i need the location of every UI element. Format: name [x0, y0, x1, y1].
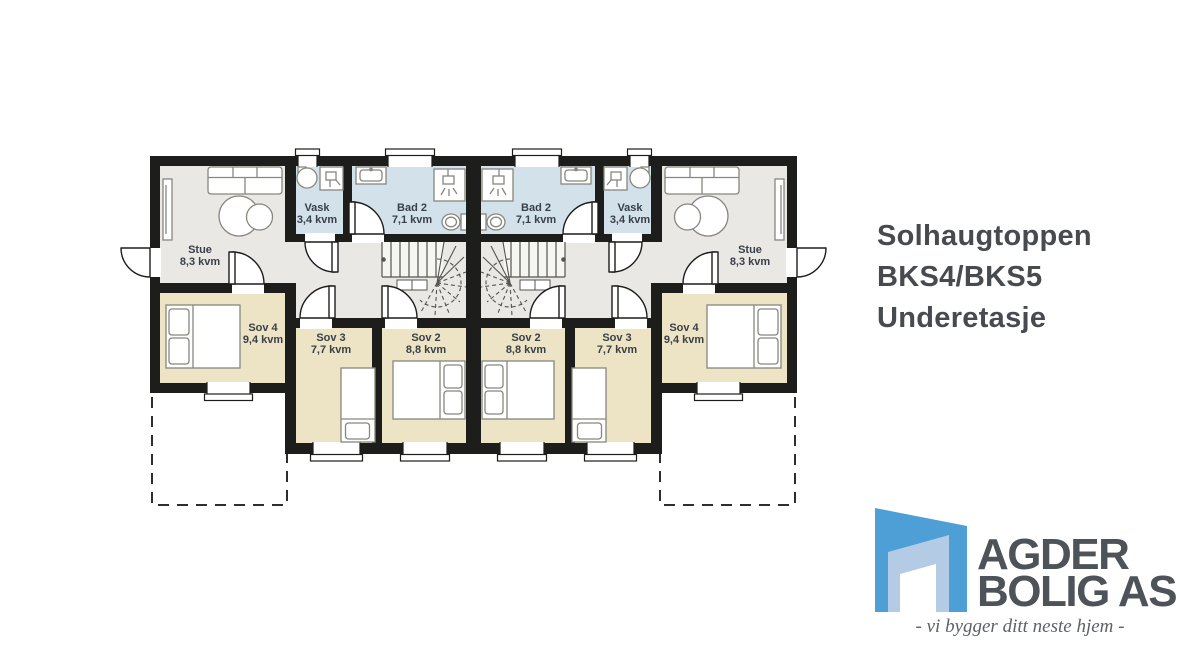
label-sov3-right-area: 7,7 kvm	[597, 344, 638, 356]
plan-title-floor: Underetasje	[877, 298, 1092, 339]
label-sov2-left-area: 8,8 kvm	[406, 344, 447, 356]
floorplan: Stue 8,3 kvm Vask 3,4 kvm Bad 2 7,1 kvm …	[110, 140, 830, 520]
company-logo: AGDER BOLIG AS - vi bygger ditt neste hj…	[875, 498, 1165, 643]
label-stue-right-name: Stue	[738, 244, 762, 256]
label-bad2-left-name: Bad 2	[397, 202, 427, 214]
label-bad2-left-area: 7,1 kvm	[392, 214, 433, 226]
label-sov2-left-name: Sov 2	[411, 332, 440, 344]
label-sov4-left-area: 9,4 kvm	[243, 334, 284, 346]
plan-title-units: BKS4/BKS5	[877, 257, 1092, 298]
label-stue-right-area: 8,3 kvm	[730, 256, 771, 268]
page: Stue 8,3 kvm Vask 3,4 kvm Bad 2 7,1 kvm …	[0, 0, 1180, 663]
house-logo-icon	[875, 498, 969, 612]
label-sov3-left-name: Sov 3	[316, 332, 345, 344]
label-vask-right-area: 3,4 kvm	[610, 214, 651, 226]
company-name: AGDER BOLIG AS	[977, 536, 1176, 610]
label-sov2-right-name: Sov 2	[511, 332, 540, 344]
label-sov4-left-name: Sov 4	[248, 322, 278, 334]
company-tagline: - vi bygger ditt neste hjem -	[885, 616, 1155, 638]
label-vask-left-name: Vask	[304, 202, 330, 214]
company-name-line2: BOLIG AS	[977, 573, 1176, 610]
label-vask-left-area: 3,4 kvm	[297, 214, 338, 226]
party-wall	[466, 156, 481, 454]
label-vask-right-name: Vask	[617, 202, 643, 214]
plan-title-project: Solhaugtoppen	[877, 216, 1092, 257]
label-sov3-left-area: 7,7 kvm	[311, 344, 352, 356]
label-stue-left-area: 8,3 kvm	[180, 256, 221, 268]
label-sov3-right-name: Sov 3	[602, 332, 631, 344]
label-sov4-right-name: Sov 4	[669, 322, 699, 334]
label-stue-left-name: Stue	[188, 244, 212, 256]
plan-title: Solhaugtoppen BKS4/BKS5 Underetasje	[877, 216, 1092, 339]
label-bad2-right-name: Bad 2	[521, 202, 551, 214]
label-bad2-right-area: 7,1 kvm	[516, 214, 557, 226]
label-sov2-right-area: 8,8 kvm	[506, 344, 547, 356]
label-sov4-right-area: 9,4 kvm	[664, 334, 705, 346]
